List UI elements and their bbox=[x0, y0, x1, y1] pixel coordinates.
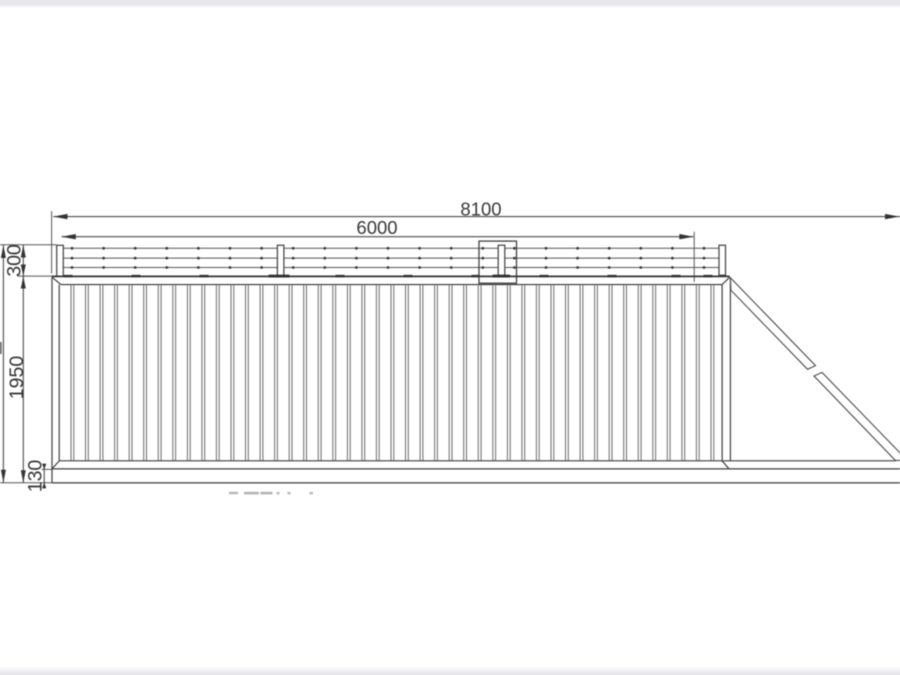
svg-text:300: 300 bbox=[4, 244, 26, 277]
svg-text:8100: 8100 bbox=[460, 198, 501, 219]
svg-text:1950: 1950 bbox=[6, 356, 28, 400]
svg-text:6000: 6000 bbox=[356, 217, 397, 238]
svg-text:130: 130 bbox=[25, 460, 47, 493]
